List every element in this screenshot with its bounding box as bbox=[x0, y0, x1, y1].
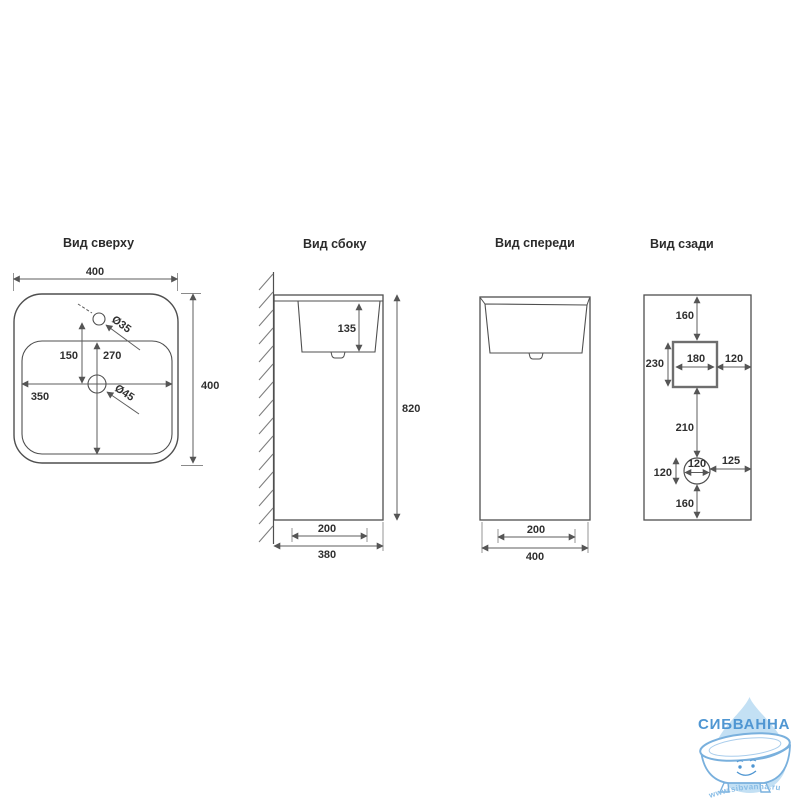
brand-name: СИБВАННА bbox=[698, 716, 790, 733]
dimension-label-niche-right: 120 bbox=[725, 353, 743, 365]
front-view-drain-notch bbox=[529, 353, 543, 359]
dimension-label-hole-right: 125 bbox=[722, 455, 740, 467]
back-view: Вид сзади 160 180 230 120 210 120 120 12… bbox=[644, 237, 751, 520]
dimension-label-height: 820 bbox=[402, 403, 420, 415]
dimension-label-top-width: 400 bbox=[86, 266, 104, 278]
top-view-title: Вид сверху bbox=[63, 236, 134, 250]
bathtub-mascot-icon bbox=[699, 729, 791, 792]
dimension-label-faucet-hole: Ø35 bbox=[109, 314, 133, 336]
dimension-label-drain-hole: Ø45 bbox=[112, 382, 136, 403]
wall-hatching bbox=[259, 274, 273, 542]
dimension-label-niche-width: 180 bbox=[687, 353, 705, 365]
top-view: Вид сверху 400 400 270 150 350 Ø35 Ø45 bbox=[14, 236, 220, 466]
technical-drawing-canvas: Вид сверху 400 400 270 150 350 Ø35 Ø45 bbox=[0, 0, 800, 800]
front-view-title: Вид спереди bbox=[495, 236, 575, 250]
dimension-label-niche-to-hole: 210 bbox=[676, 422, 694, 434]
back-view-title: Вид сзади bbox=[650, 237, 714, 251]
dimension-label-base-width: 200 bbox=[527, 524, 545, 536]
dimension-label-basin-depth: 135 bbox=[338, 323, 356, 335]
front-view-rim-corner bbox=[481, 298, 486, 304]
front-view-basin-profile bbox=[485, 304, 587, 353]
side-view-body bbox=[274, 295, 383, 520]
top-view-outer-rim bbox=[14, 294, 178, 463]
brand-website: www.sibvanna.ru bbox=[707, 782, 781, 800]
side-view: Вид сбоку 135 820 200 bbox=[259, 237, 420, 561]
side-view-title: Вид сбоку bbox=[303, 237, 367, 251]
dimension-label-niche-height: 230 bbox=[646, 358, 664, 370]
brand-logo: СИБВАННА www.sibvanna.ru bbox=[698, 697, 791, 800]
front-view-body bbox=[480, 297, 590, 520]
side-view-drain-notch bbox=[331, 352, 345, 358]
front-view: Вид спереди 200 400 bbox=[480, 236, 590, 563]
faucet-leader-line bbox=[78, 304, 92, 313]
dimension-label-base-depth: 200 bbox=[318, 523, 336, 535]
dimension-label-total-depth: 380 bbox=[318, 549, 336, 561]
dimension-label-faucet-offset: 150 bbox=[60, 350, 78, 362]
faucet-hole bbox=[93, 313, 105, 325]
dimension-label-hole-height: 120 bbox=[654, 467, 672, 479]
dimension-label-top-height: 400 bbox=[201, 380, 219, 392]
dimension-label-basin-length: 270 bbox=[103, 350, 121, 362]
front-view-rim-corner bbox=[587, 298, 590, 305]
dimension-label-total-width: 400 bbox=[526, 551, 544, 563]
drawing-svg: Вид сверху 400 400 270 150 350 Ø35 Ø45 bbox=[0, 0, 800, 800]
dimension-label-bottom-offset: 160 bbox=[676, 498, 694, 510]
dimension-label-basin-width: 350 bbox=[31, 391, 49, 403]
dimension-label-top-offset: 160 bbox=[676, 310, 694, 322]
dimension-label-hole-diameter: 120 bbox=[688, 458, 706, 470]
